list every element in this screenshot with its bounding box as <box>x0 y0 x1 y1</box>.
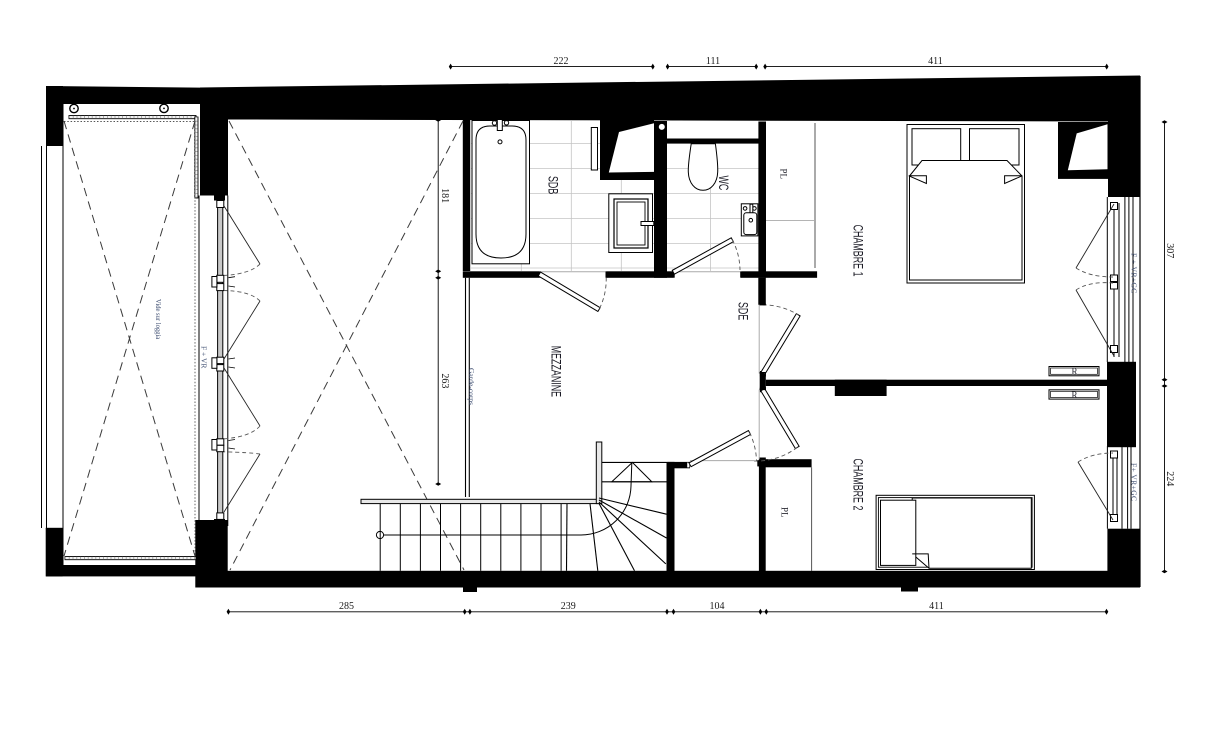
svg-text:111: 111 <box>706 56 720 67</box>
svg-text:307: 307 <box>1164 243 1175 258</box>
svg-text:222: 222 <box>554 56 569 67</box>
svg-text:F+ VR+GC: F+ VR+GC <box>1130 463 1139 501</box>
svg-text:F + VR: F + VR <box>200 346 209 368</box>
svg-text:411: 411 <box>928 56 943 67</box>
svg-text:181: 181 <box>439 188 450 203</box>
svg-text:R: R <box>1072 367 1078 377</box>
svg-text:285: 285 <box>339 601 354 612</box>
svg-text:SDE: SDE <box>735 302 749 321</box>
svg-text:Vide sur loggia: Vide sur loggia <box>154 299 162 340</box>
svg-text:F + VR+GC: F + VR+GC <box>1130 253 1139 294</box>
svg-text:WC: WC <box>715 176 729 191</box>
svg-text:CHAMBRE 2: CHAMBRE 2 <box>850 459 864 511</box>
svg-text:239: 239 <box>561 601 576 612</box>
svg-text:SDB: SDB <box>545 176 559 195</box>
svg-text:R: R <box>1072 390 1078 400</box>
svg-text:CHAMBRE 1: CHAMBRE 1 <box>850 225 864 277</box>
svg-text:Garde-corps: Garde-corps <box>467 368 476 405</box>
svg-text:PL: PL <box>779 169 789 180</box>
svg-text:PL: PL <box>780 507 790 518</box>
svg-text:MEZZANINE: MEZZANINE <box>548 346 562 398</box>
svg-text:104: 104 <box>710 601 725 612</box>
svg-text:263: 263 <box>439 373 450 388</box>
svg-text:224: 224 <box>1164 471 1175 486</box>
svg-text:411: 411 <box>929 601 944 612</box>
